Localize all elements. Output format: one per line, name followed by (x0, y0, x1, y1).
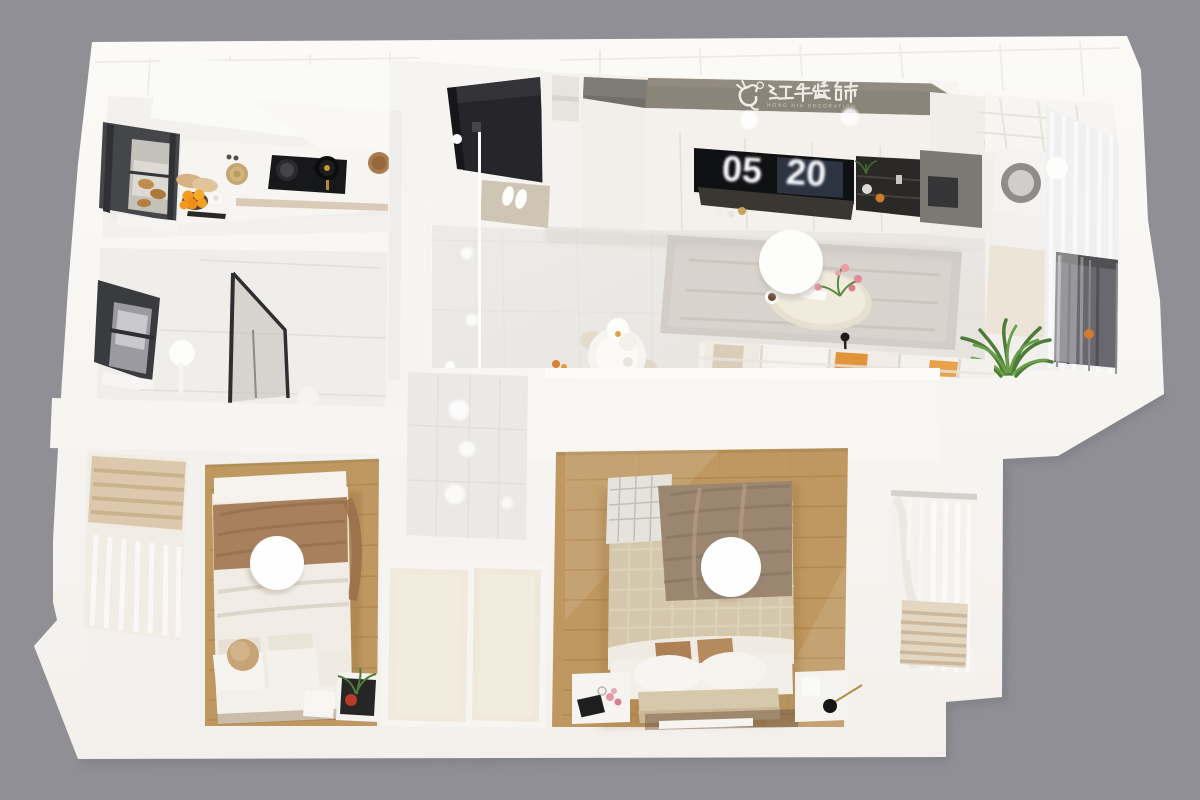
svg-text:20: 20 (785, 151, 827, 194)
svg-text:05: 05 (721, 148, 763, 191)
